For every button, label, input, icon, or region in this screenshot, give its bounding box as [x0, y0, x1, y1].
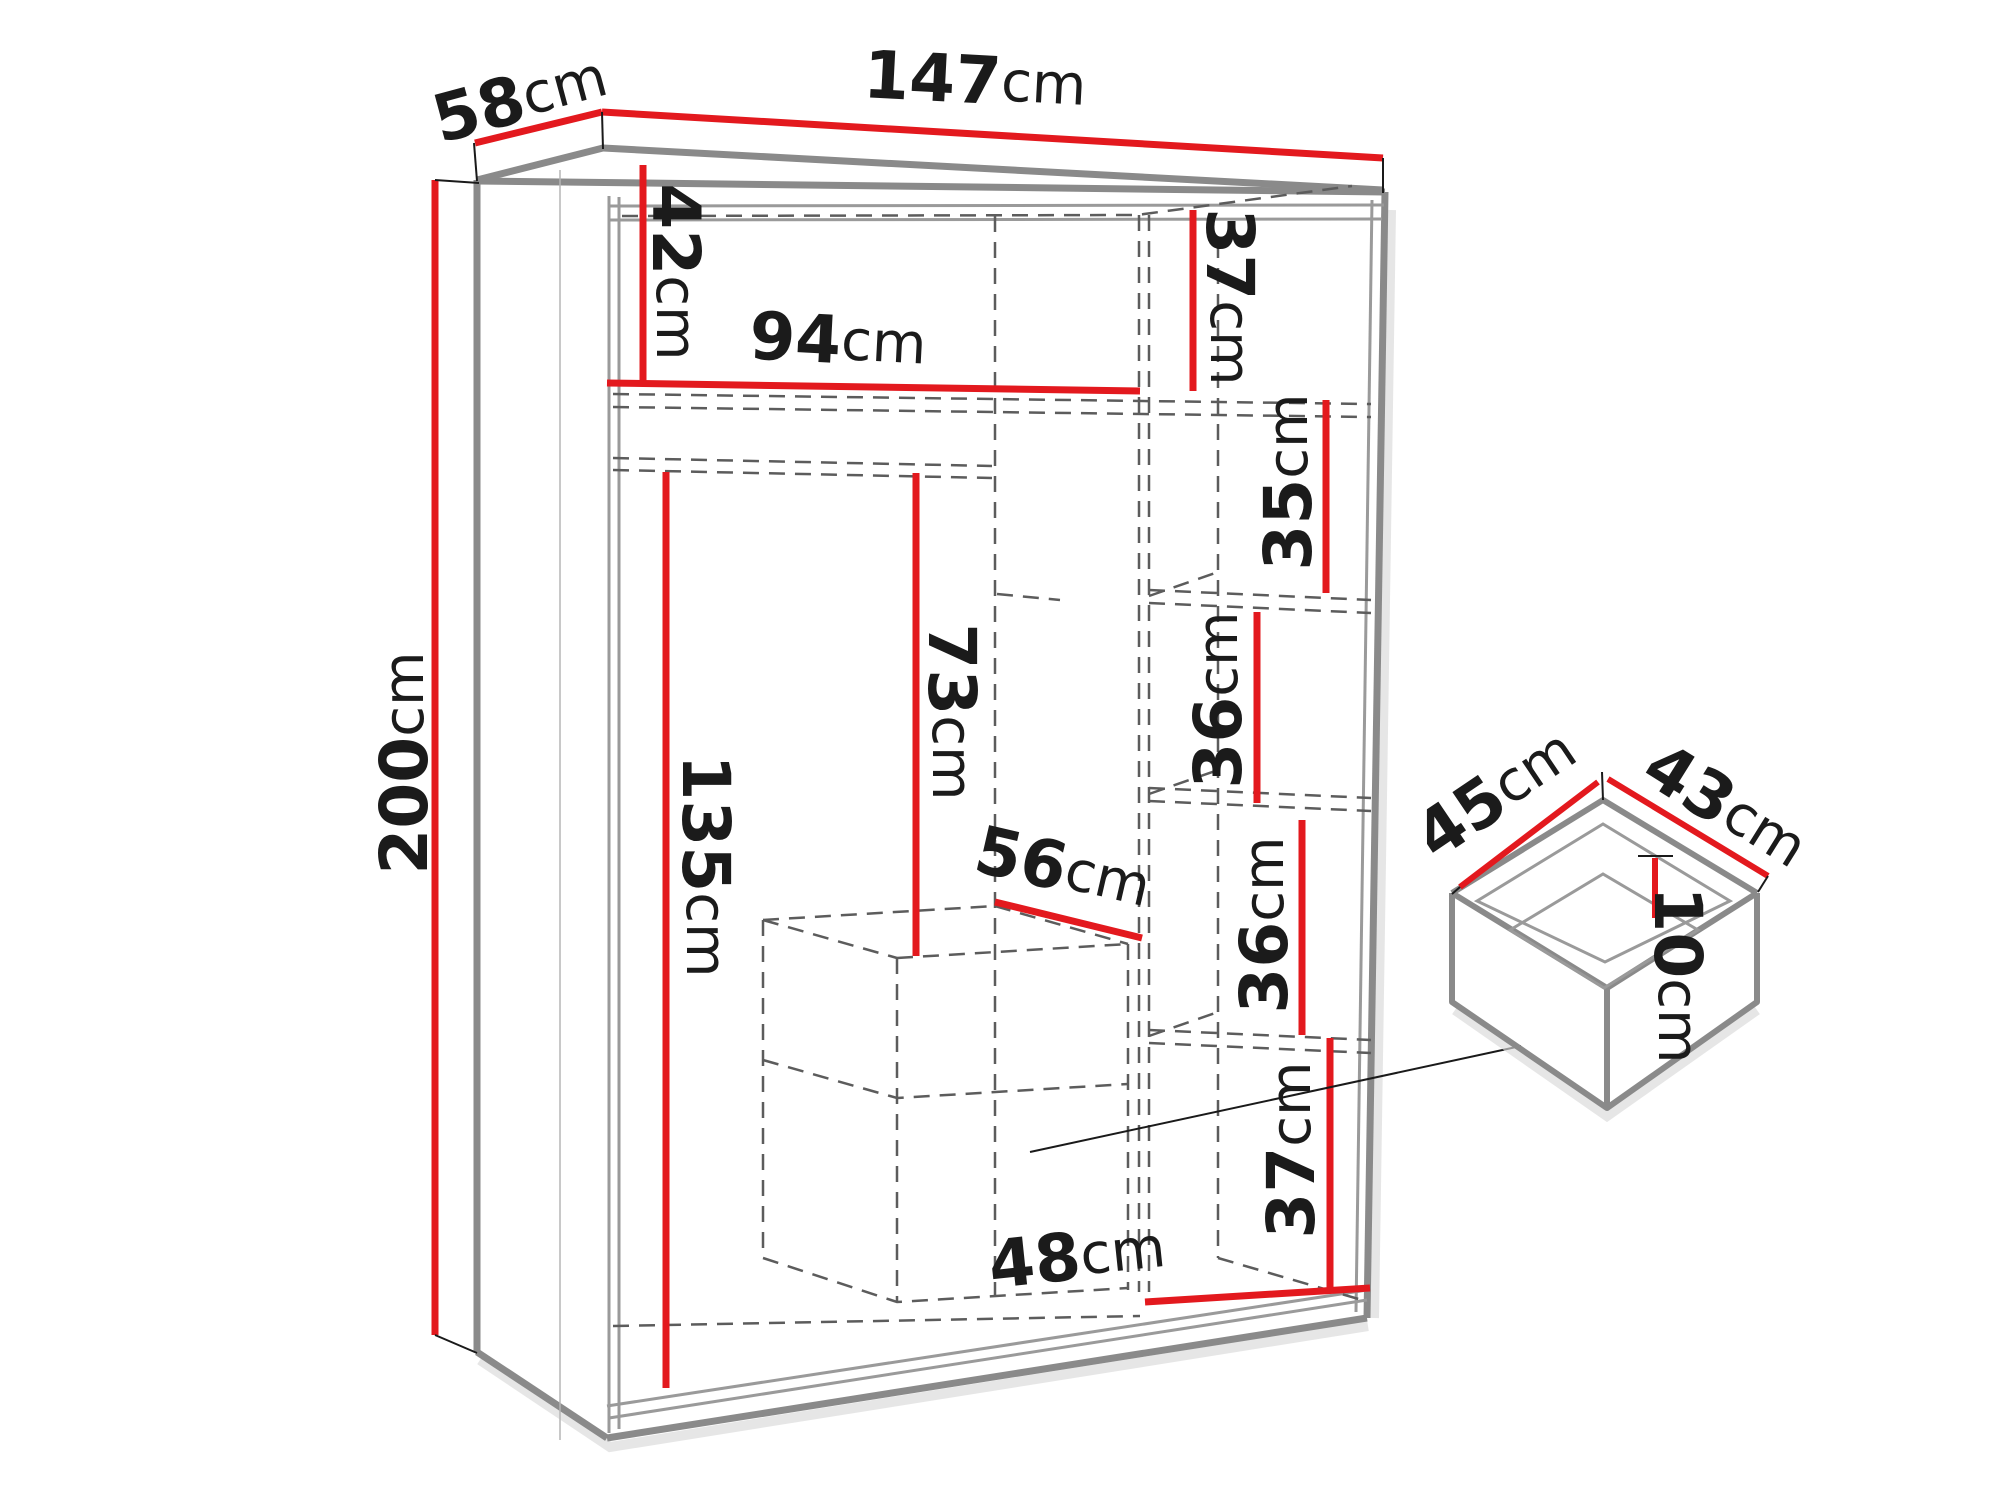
dim-42-label: 42cm	[638, 183, 715, 360]
wardrobe-drawing: 147cm 58cm 200cm 42cm 94cm 37cm 35cm 36c…	[366, 36, 1522, 1447]
bottom-front-edge	[607, 1318, 1367, 1438]
dim-48-label: 48cm	[985, 1208, 1169, 1303]
dim-36-a-label: 36cm	[1180, 611, 1257, 788]
dim-37-top-label: 37cm	[1192, 208, 1269, 385]
wardrobe-dimension-diagram: 147cm 58cm 200cm 42cm 94cm 37cm 35cm 36c…	[0, 0, 2000, 1500]
dim-depth-58-label: 58cm	[424, 38, 615, 158]
diagram-canvas: 147cm 58cm 200cm 42cm 94cm 37cm 35cm 36c…	[0, 0, 2000, 1500]
dim-56-label: 56cm	[968, 811, 1158, 926]
dim-135-label: 135cm	[668, 754, 745, 977]
dim-94-label: 94cm	[748, 297, 929, 383]
bottom-left-edge	[477, 1352, 607, 1438]
dim-37-bottom-label: 37cm	[1253, 1061, 1330, 1238]
dimension-labels: 147cm 58cm 200cm 42cm 94cm 37cm 35cm 36c…	[366, 36, 1330, 1304]
dim-35-label: 35cm	[1250, 393, 1327, 570]
dim-73-label: 73cm	[914, 623, 991, 800]
wardrobe-shadow	[480, 210, 1391, 1447]
dim-height-200-label: 200cm	[366, 651, 443, 874]
dim-36-b-label: 36cm	[1226, 836, 1303, 1013]
drawer-detail-drawing: 45cm 43cm 10cm	[1401, 712, 1822, 1116]
hanging-rail	[613, 458, 992, 466]
dim-43-label: 43cm	[1630, 726, 1821, 885]
top-left-edge	[477, 148, 603, 180]
dim-10-label: 10cm	[1640, 886, 1717, 1063]
dim-width-147-label: 147cm	[862, 36, 1089, 125]
dim-94-line	[607, 383, 1140, 391]
